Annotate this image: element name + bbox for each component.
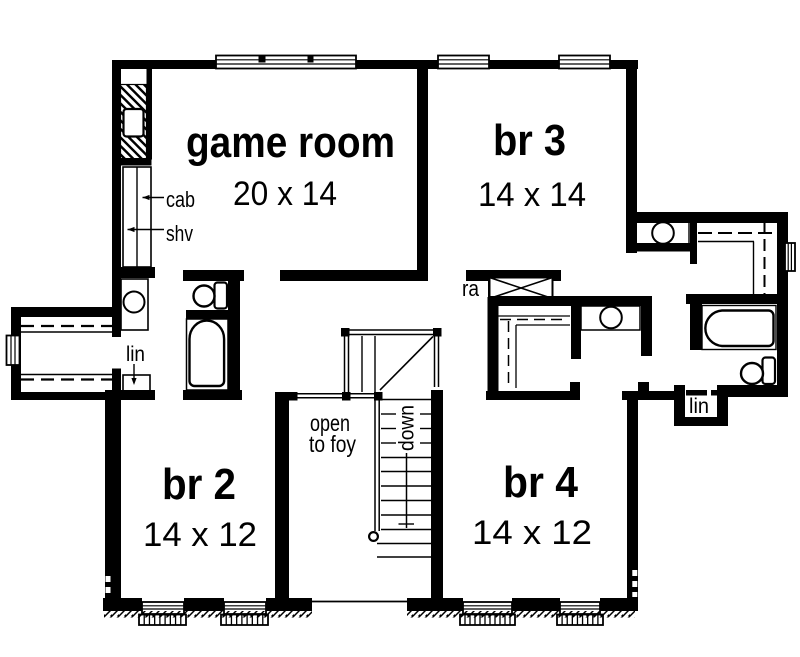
svg-text:br 4: br 4 [503,458,578,507]
svg-text:14 x 12: 14 x 12 [143,516,257,554]
svg-text:to foy: to foy [309,431,356,457]
svg-text:14 x 12: 14 x 12 [472,514,592,552]
svg-text:lin: lin [126,343,145,366]
svg-text:br 2: br 2 [162,460,236,509]
svg-text:down: down [395,405,419,451]
svg-text:14 x 14: 14 x 14 [478,176,586,214]
svg-text:cab: cab [166,187,195,212]
svg-text:game room: game room [186,118,395,167]
svg-text:shv: shv [166,221,193,246]
svg-text:20 x 14: 20 x 14 [233,175,337,213]
svg-text:lin: lin [689,395,709,418]
svg-text:br 3: br 3 [493,116,566,165]
svg-text:ra: ra [462,276,480,301]
